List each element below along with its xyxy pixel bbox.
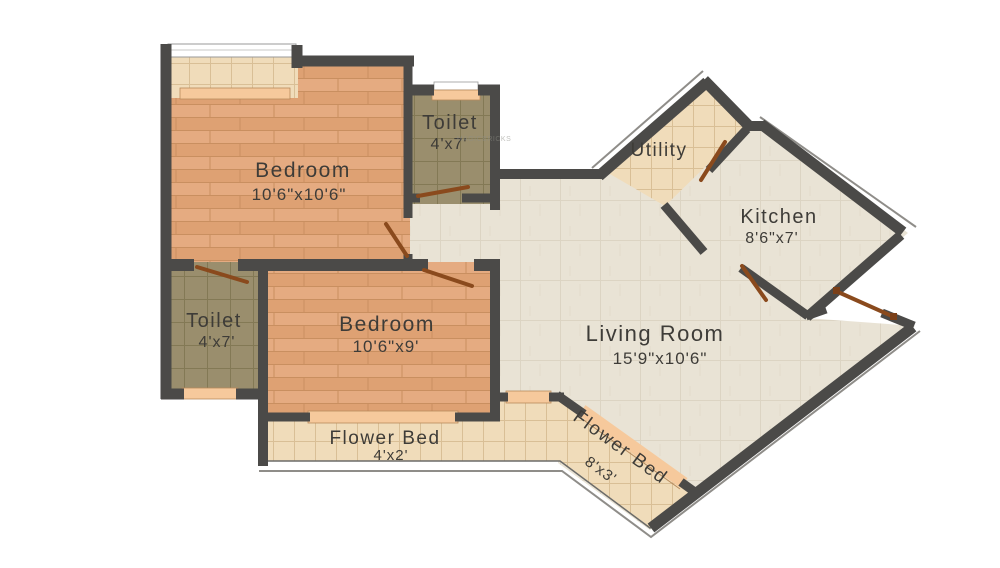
toilet1-window <box>434 82 478 90</box>
bedroom2-sill <box>308 411 458 423</box>
bedroom2-dims: 10'6"x9' <box>353 337 420 356</box>
balcony-sill <box>180 88 290 99</box>
bedroom2-label: Bedroom <box>339 313 435 336</box>
entrance-latch <box>890 313 897 320</box>
kitchen-label: Kitchen <box>740 206 817 228</box>
bedroom1-label: Bedroom <box>255 159 351 182</box>
flower-bed1-dims: 4'x2' <box>374 447 409 464</box>
toilet2-dims: 4'x7' <box>199 334 236 351</box>
floor-plan-image: Bedroom 10'6"x10'6" Toilet 4'x7' Utility… <box>0 0 1000 568</box>
toilet2-label: Toilet <box>186 310 242 332</box>
living-room-dims: 15'9"x10'6" <box>613 349 708 368</box>
utility-label: Utility <box>631 140 688 161</box>
toilet1-label: Toilet <box>422 112 478 134</box>
watermark: MAGICBRICKS <box>457 136 512 143</box>
toilet2-sill <box>182 388 238 399</box>
entrance-hinge <box>833 287 840 294</box>
flower-bed1-label: Flower Bed <box>329 428 440 449</box>
kitchen-dims: 8'6"x7' <box>745 230 798 247</box>
living-room-label: Living Room <box>586 321 725 346</box>
floor-plan-svg: Bedroom 10'6"x10'6" Toilet 4'x7' Utility… <box>0 0 1000 568</box>
bedroom1-dims: 10'6"x10'6" <box>252 185 347 204</box>
toilet1-sill <box>432 90 480 100</box>
living-sill <box>506 391 551 403</box>
